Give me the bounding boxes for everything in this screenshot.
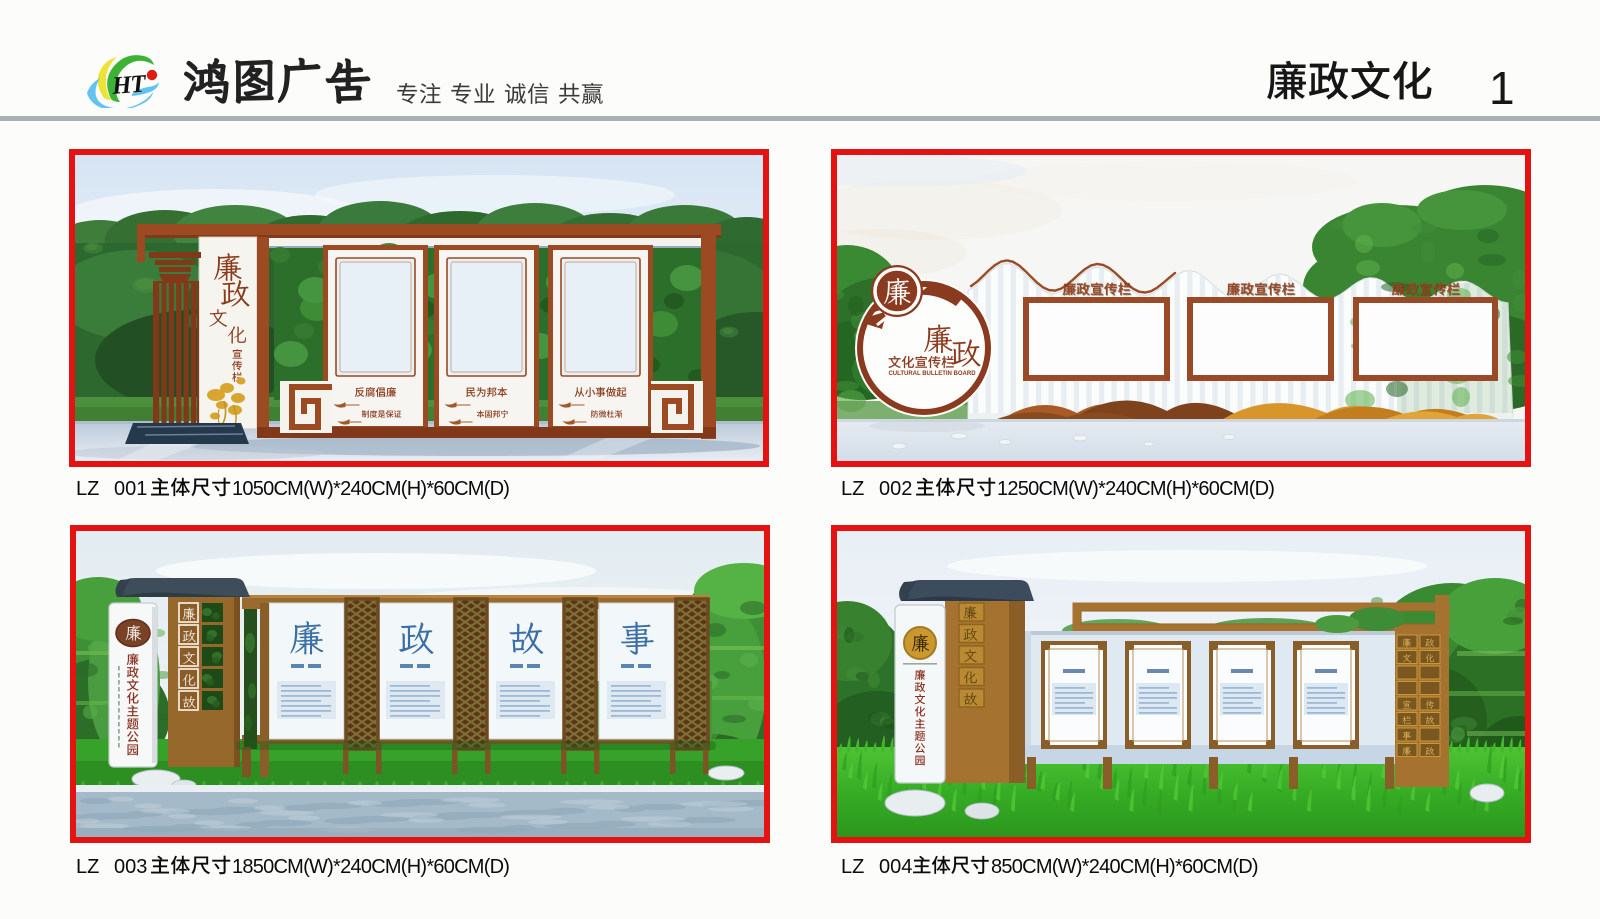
svg-text:CULTURAL BULLETIN BOARD: CULTURAL BULLETIN BOARD	[888, 371, 976, 377]
svg-text:HT: HT	[110, 70, 148, 99]
